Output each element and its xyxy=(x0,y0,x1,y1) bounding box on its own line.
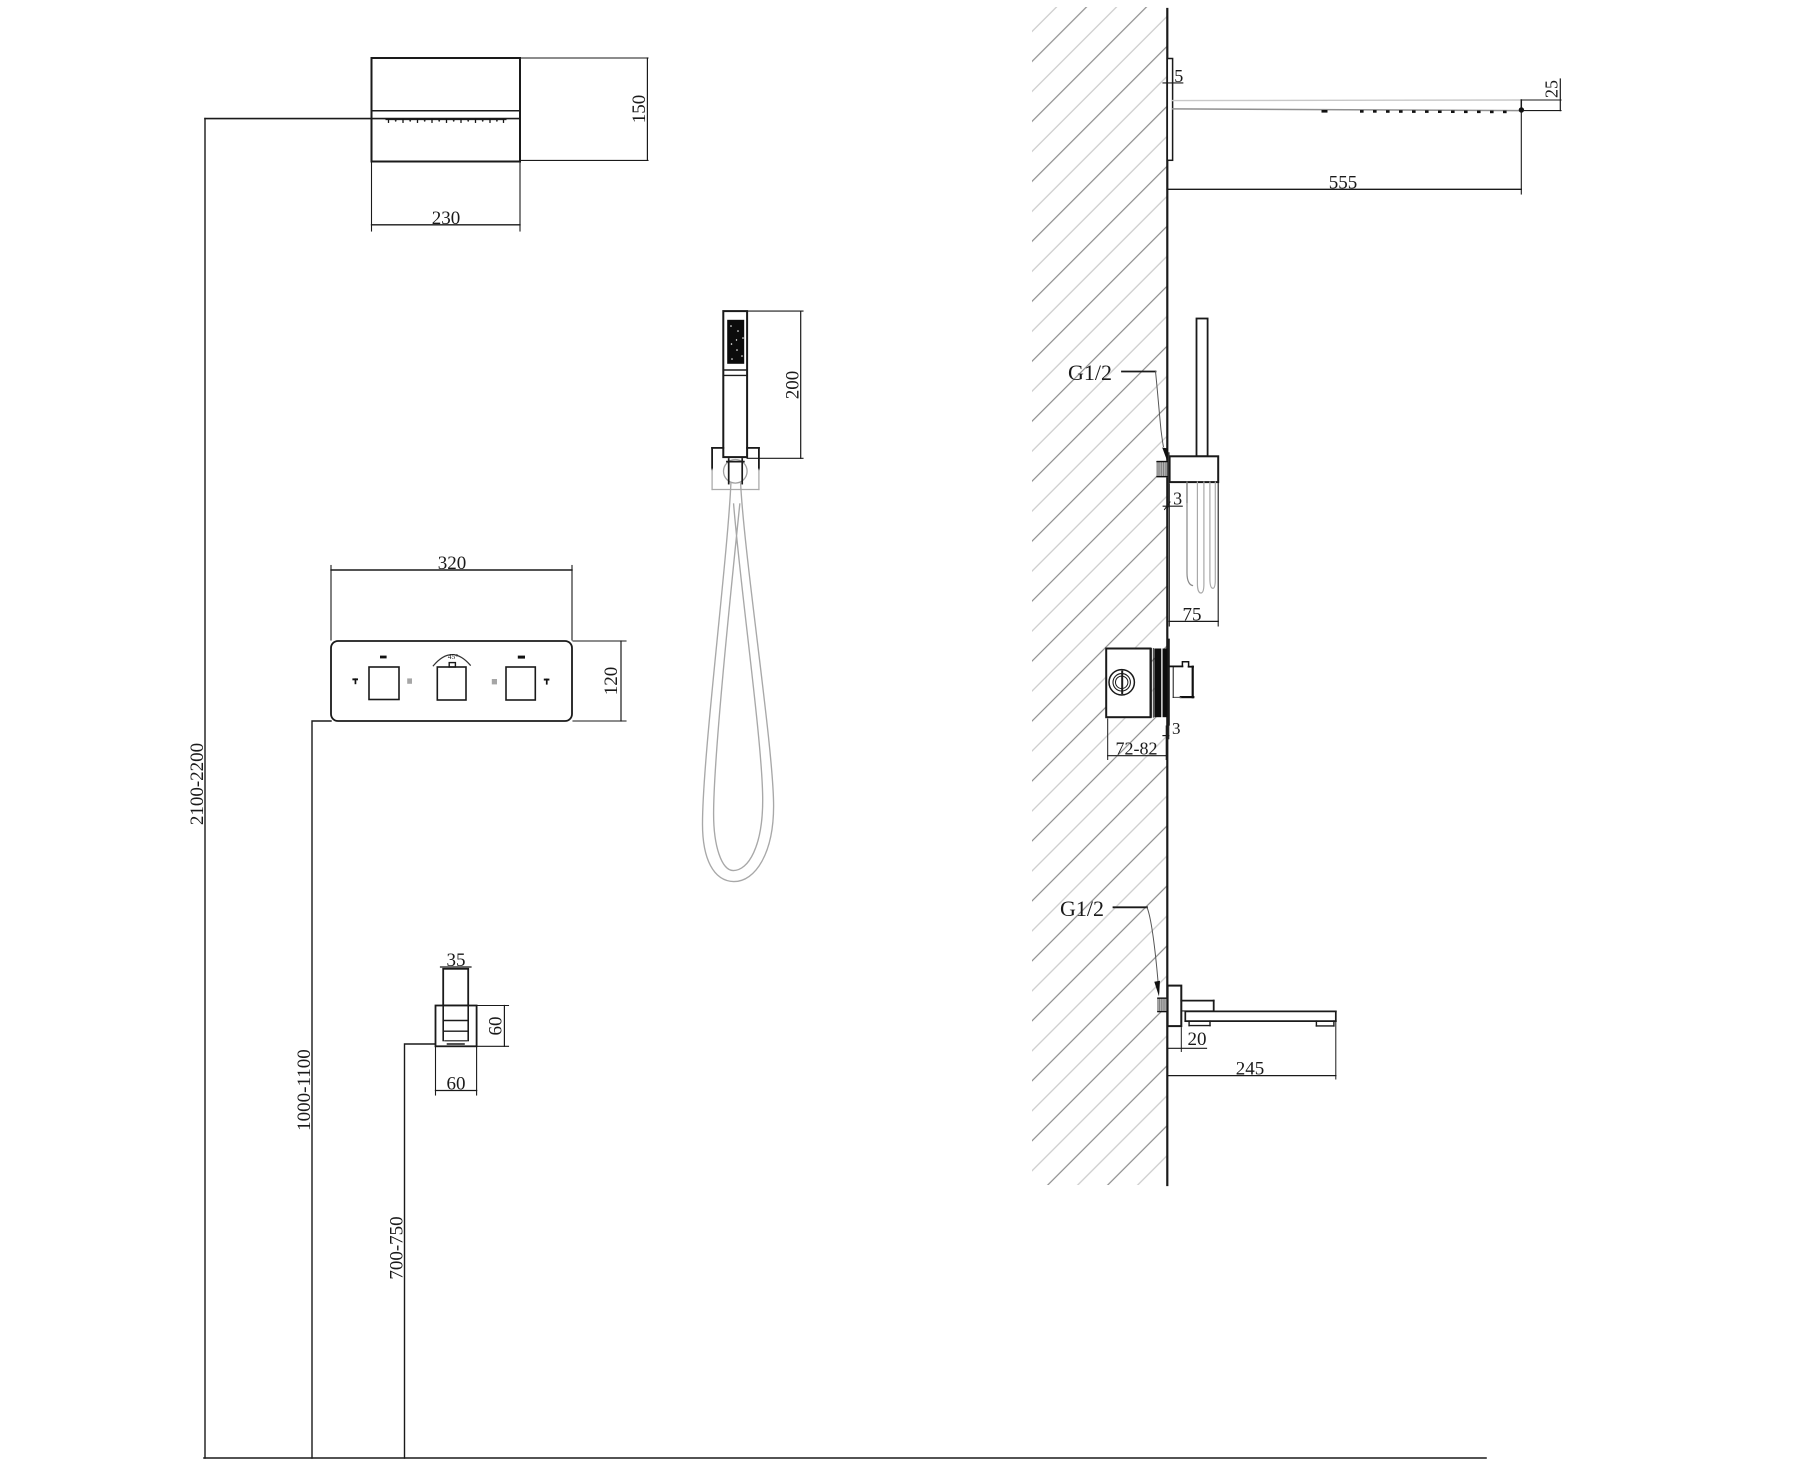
svg-text:320: 320 xyxy=(438,553,467,574)
svg-text:1000-1100: 1000-1100 xyxy=(294,1049,315,1131)
svg-text:75: 75 xyxy=(1183,605,1202,626)
svg-text:G1/2: G1/2 xyxy=(1068,360,1112,385)
svg-text:60: 60 xyxy=(486,1017,507,1036)
svg-text:150: 150 xyxy=(629,95,650,124)
svg-text:25: 25 xyxy=(1542,80,1562,98)
svg-text:45°: 45° xyxy=(448,652,459,661)
svg-text:245: 245 xyxy=(1236,1059,1265,1080)
svg-text:G1/2: G1/2 xyxy=(1060,896,1104,921)
svg-text:60: 60 xyxy=(447,1074,466,1095)
svg-text:35: 35 xyxy=(447,950,466,971)
svg-text:230: 230 xyxy=(432,208,461,229)
svg-text:2100-2200: 2100-2200 xyxy=(187,743,208,825)
svg-text:555: 555 xyxy=(1329,172,1358,193)
svg-text:72-82: 72-82 xyxy=(1116,739,1158,759)
svg-text:120: 120 xyxy=(601,667,622,696)
svg-text:20: 20 xyxy=(1188,1029,1207,1050)
svg-text:700-750: 700-750 xyxy=(387,1216,408,1279)
svg-text:5: 5 xyxy=(1174,66,1183,86)
svg-text:3: 3 xyxy=(1173,488,1182,508)
svg-text:3: 3 xyxy=(1172,719,1181,738)
svg-text:200: 200 xyxy=(783,371,804,400)
